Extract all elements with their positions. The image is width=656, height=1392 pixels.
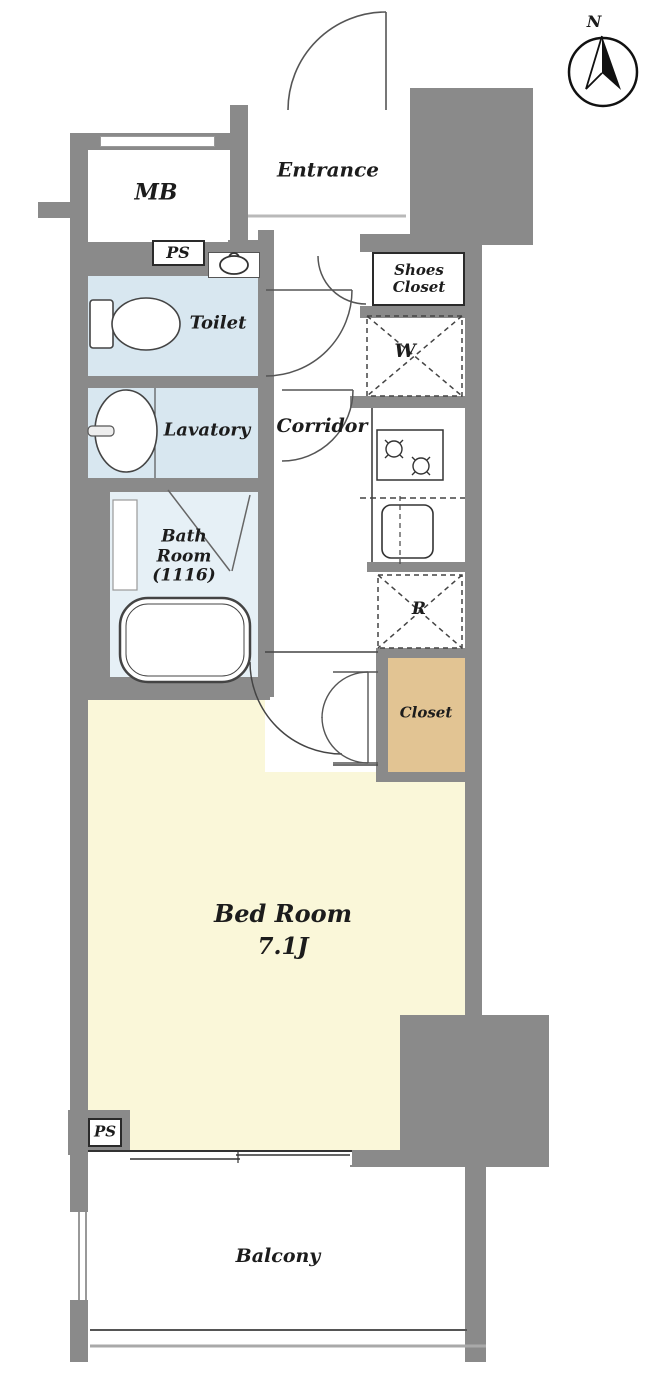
wall-corridor-left bbox=[258, 230, 274, 697]
compass bbox=[569, 36, 637, 106]
wall-shoes-top bbox=[360, 234, 482, 252]
wall-right-outer bbox=[465, 245, 482, 1020]
shoes-closet-line2: Closet bbox=[393, 279, 446, 296]
wall-bath-left bbox=[70, 492, 110, 700]
water-heater-box bbox=[208, 252, 260, 278]
wall-entrance-left bbox=[230, 105, 248, 248]
bedroom-doorway-floor bbox=[265, 650, 378, 772]
wall-shoes-bottom bbox=[360, 306, 482, 318]
bedroom-size-label: 7.1J bbox=[258, 934, 309, 960]
bedroom-name-label: Bed Room bbox=[214, 900, 352, 928]
corridor-label: Corridor bbox=[276, 416, 367, 438]
wall-below-washer bbox=[350, 396, 482, 408]
floor-plan: N Entrance MB PS Toilet Lavatory Corrido… bbox=[0, 0, 656, 1392]
shoes-closet-label: Shoes Closet bbox=[393, 262, 446, 297]
balcony-label: Balcony bbox=[236, 1246, 321, 1268]
closet-label: Closet bbox=[400, 704, 453, 721]
shoes-closet-line1: Shoes bbox=[393, 262, 446, 279]
balcony-rails bbox=[79, 1212, 486, 1346]
entrance-door-arc bbox=[288, 12, 386, 110]
wall-left-stub bbox=[38, 202, 72, 218]
wall-balcony-pillar-right bbox=[465, 1167, 486, 1362]
wall-balcony-pillar-left-bottom bbox=[70, 1300, 88, 1362]
compass-circle bbox=[569, 38, 637, 106]
refrigerator-label: R bbox=[412, 600, 426, 620]
washer-label: W bbox=[394, 341, 415, 363]
bath-label-line1: Bath bbox=[152, 528, 215, 548]
window-band bbox=[88, 1150, 352, 1165]
wall-block-top-right bbox=[410, 88, 533, 245]
wall-bath-bottom bbox=[70, 677, 270, 700]
wall-toilet-lavatory bbox=[70, 376, 258, 388]
entrance-label: Entrance bbox=[277, 159, 379, 182]
entrance-door bbox=[288, 12, 386, 110]
lavatory-label: Lavatory bbox=[164, 421, 251, 442]
mb-louver bbox=[100, 136, 215, 147]
bath-label-line2: Room bbox=[152, 547, 215, 567]
mb-label: MB bbox=[135, 180, 178, 205]
ps-top-label: PS bbox=[166, 244, 190, 262]
toilet-label: Toilet bbox=[190, 314, 247, 335]
wall-lavatory-bath bbox=[70, 478, 270, 492]
compass-label: N bbox=[587, 13, 602, 31]
bath-label-line3: (1116) bbox=[152, 567, 215, 587]
ps-bottom-label: PS bbox=[94, 1123, 116, 1140]
bath-room-label: Bath Room (1116) bbox=[152, 528, 215, 587]
north-arrow-icon bbox=[602, 36, 621, 90]
north-arrow-outline bbox=[586, 36, 602, 89]
wall-bedroom-bottom bbox=[350, 1150, 408, 1167]
wall-below-kitchen bbox=[367, 562, 482, 572]
wall-balcony-pillar-left-top bbox=[70, 1153, 88, 1212]
wall-block-bottom-right bbox=[400, 1015, 549, 1167]
